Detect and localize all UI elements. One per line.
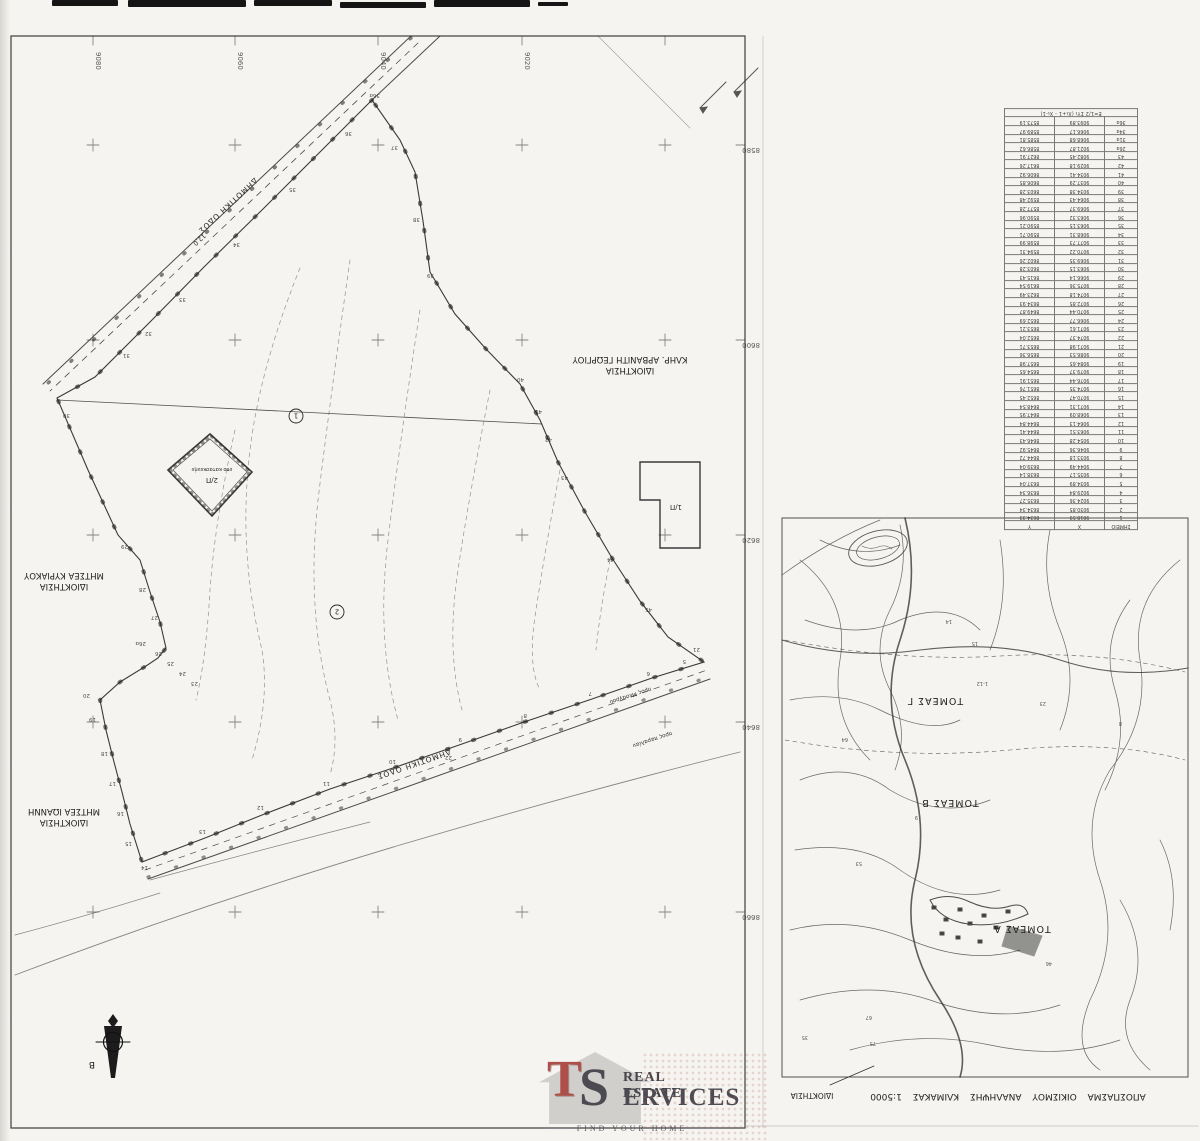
coords-row: 79044.498639.04 [1005,461,1138,470]
grid-y-label: 8580 [742,146,760,154]
point-label: 34 [233,241,240,247]
point-label: 11 [323,780,330,786]
coords-row: 169074.358651.76 [1005,384,1138,393]
point-label: 9 [915,814,918,820]
point-label: 64 [842,736,848,742]
svg-text:ΜΗΤΣΕΑ ΙΩΑΝΝΗ: ΜΗΤΣΕΑ ΙΩΑΝΝΗ [28,806,100,816]
coords-row: 109054.288646.43 [1005,435,1138,444]
coords-row: 34α9066.178589.97 [1005,126,1138,135]
point-label: 30 [63,412,70,418]
point-label: 35 [289,186,296,192]
coords-row: 99046.368645.92 [1005,444,1138,453]
coords-header-row: ΣΗΜΕΙΟ X Y [1005,521,1138,530]
owner-label-kyriakou: ΙΔΙΟΚΤΗΣΙΑ ΜΗΤΣΕΑ ΚΥΡΙΑΚΟΥ [23,570,104,591]
point-label: 23 [191,680,198,686]
coords-row: 89033.188644.72 [1005,452,1138,461]
point-label: 25 [167,660,174,666]
point-label: 53 [856,860,862,866]
coords-row: 349068.318590.71 [1005,229,1138,238]
point-label: 26α [135,640,146,646]
coords-row: 189079.378654.65 [1005,366,1138,375]
grid-y-label: 8600 [742,341,760,349]
building-2p-label: 2/Π υπο κατασκευήν [191,466,232,484]
coordinates-table: ΣΗΜΕΙΟ X Y 19018.598634.3329030.858634.3… [1004,108,1138,530]
coords-row: 39024.368635.27 [1005,495,1138,504]
halftone-artifact [642,1052,767,1140]
coords-row: 319069.358602.26 [1005,255,1138,264]
point-label: 28 [139,586,146,592]
point-label: 17 [109,780,116,786]
boundary-point-ticks [57,100,704,862]
point-label: 6 [646,670,650,676]
grid-y-label: 8620 [742,536,760,544]
point-label: 27 [151,614,158,620]
coords-row: 179076.448651.91 [1005,375,1138,384]
parcel-number-label: 1 [294,412,298,420]
grid-x-label: 9040 [379,52,387,70]
svg-text:ΙΔΙΟΚΤΗΣΙΑ: ΙΔΙΟΚΤΗΣΙΑ [40,581,89,591]
tagline-rule-left [547,1128,573,1129]
coords-row: 329070.228594.31 [1005,246,1138,255]
grid-labels: 9080 9060 9040 9020 8580 8600 8620 8640 … [94,52,760,921]
point-label: 40 [517,376,524,382]
coords-row: 229074.378652.04 [1005,332,1138,341]
point-label: 8 [523,712,527,718]
point-label: 36 [345,130,352,136]
grid-x-label: 9080 [94,52,102,70]
logo-letter-t: T [547,1050,582,1109]
north-label: Β [89,1059,95,1069]
owner-label-ioanni: ΙΔΙΟΚΤΗΣΙΑ ΜΗΤΣΕΑ ΙΩΑΝΝΗ [28,806,100,827]
point-label: 35 [802,1034,808,1040]
point-label: 41 [535,408,542,414]
coords-row: 269072.858634.93 [1005,298,1138,307]
point-label: 10 [389,758,396,764]
coords-row: 149071.318648.54 [1005,401,1138,410]
area-formula-row: Ε=1/2 ΣΥι (Χι+1 - Χι-1) [1005,109,1138,118]
parcel-number-label: 2 [335,608,339,616]
point-label: 5 [682,658,686,664]
coords-row: 139068.098647.95 [1005,409,1138,418]
svg-text:ΔΗΜΟΤΙΚΗ ΟΔΟΣ: ΔΗΜΟΤΙΚΗ ΟΔΟΣ [376,747,452,781]
parcel-division-line [57,400,542,424]
coords-row: 199084.658657.98 [1005,358,1138,367]
parcel-number-1: 1 [289,409,303,423]
building-1p-label: 1/Π [670,503,682,511]
parcel-number-2: 2 [330,605,344,619]
coords-row: 19018.598634.33 [1005,512,1138,521]
grid-x-label: 9060 [236,52,244,70]
col-header-y: Y [1005,521,1055,530]
coords-row: 49029.848636.34 [1005,487,1138,496]
point-markers: 36α3635343332313029282726α26252423201918… [63,92,700,870]
svg-text:ΚΛΗΡ. ΑΡΒΑΝΙΤΗ ΓΕΩΡΓΙΟΥ: ΚΛΗΡ. ΑΡΒΑΝΙΤΗ ΓΕΩΡΓΙΟΥ [572,354,688,364]
building-label: 2/Π [206,476,218,484]
inset-ownership-label: ΙΔΙΟΚΤΗΣΙΑ [790,1091,834,1100]
svg-text:ΔΗΜΟΤΙΚΗ ΟΔΟΣ: ΔΗΜΟΤΙΚΗ ΟΔΟΣ [196,176,259,235]
point-label: 15 [972,640,978,646]
direction-note: προς παραλίαν [632,730,673,749]
coords-row: 379069.378577.28 [1005,203,1138,212]
point-label: 37 [391,144,398,150]
point-label: 21 [693,646,700,652]
point-label: 39 [427,272,434,278]
coords-row: 59034.898637.04 [1005,478,1138,487]
point-label: 20 [83,692,90,698]
point-label: 14 [946,618,952,624]
arrow-marks [598,36,758,128]
owner-label-arvaniti: ΙΔΙΟΚΤΗΣΙΑ ΚΛΗΡ. ΑΡΒΑΝΙΤΗ ΓΕΩΡΓΙΟΥ [572,354,688,375]
coords-row: 359063.158590.21 [1005,220,1138,229]
coords-row: 129064.138644.84 [1005,418,1138,427]
point-label: 7 [588,690,592,696]
coords-row: 119063.518644.41 [1005,426,1138,435]
point-label: 67 [866,1014,872,1020]
point-label: 9 [458,736,462,742]
top-road-label: ΔΗΜΟΤΙΚΗ ΟΔΟΣ 12.0 [191,176,259,247]
coords-table-rows: 19018.598634.3329030.858634.3439024.3686… [1005,117,1138,521]
top-road [43,36,440,391]
point-label: 38 [413,216,420,222]
coords-row: 399034.388603.28 [1005,186,1138,195]
point-label: 15 [125,840,132,846]
point-label: 31 [123,352,130,358]
svg-text:ΙΔΙΟΚΤΗΣΙΑ: ΙΔΙΟΚΤΗΣΙΑ [40,817,89,827]
coords-row: 209086.538656.36 [1005,349,1138,358]
coords-row: 26α9021.878586.62 [1005,143,1138,152]
coords-row: 439082.458627.91 [1005,151,1138,160]
logo-letter-s: S [579,1060,609,1114]
svg-text:ΙΔΙΟΚΤΗΣΙΑ: ΙΔΙΟΚΤΗΣΙΑ [606,365,655,375]
point-label: 14 [141,864,148,870]
direction-notes: προς Μεσαγρού προς παραλίαν [609,685,673,749]
building-label: 1/Π [670,503,682,511]
grid-y-label: 8660 [742,913,760,921]
svg-text:ΜΗΤΣΕΑ ΚΥΡΙΑΚΟΥ: ΜΗΤΣΕΑ ΚΥΡΙΑΚΟΥ [23,570,104,580]
grid-x-label: 9020 [523,52,531,70]
coords-row: 36α9093.898573.19 [1005,117,1138,126]
building-note: υπο κατασκευήν [191,466,232,473]
sector-label: ΤΟΜΕΑΣ Β [921,797,980,808]
point-label: 1-12 [977,680,988,686]
sector-label: ΤΟΜΕΑΣ Γ [907,695,964,706]
point-label: 44 [607,556,614,562]
point-label: 12 [257,804,264,810]
ownership-leader-line [830,1066,874,1085]
point-label: 13 [199,828,206,834]
coords-row: 419034.418606.92 [1005,169,1138,178]
grid-crosses [87,36,745,918]
point-label: 46 [1046,960,1052,966]
contour-lines [196,260,610,775]
point-label: 75 [870,1040,876,1046]
coords-row: 219071.988653.71 [1005,341,1138,350]
col-header-x: X [1055,521,1105,530]
point-label: 43 [561,474,568,480]
scanned-survey-page: 9080 9060 9040 9020 8580 8600 8620 8640 … [0,0,1200,1141]
coords-row: 29030.858634.34 [1005,504,1138,513]
point-label: 42 [545,436,552,442]
coords-row: 69035.178638.14 [1005,469,1138,478]
coords-row: 339077.738598.99 [1005,237,1138,246]
inset-roads [782,518,1188,1077]
sector-label: ΤΟΜΕΑΣ Α [993,923,1052,934]
parcel-boundary [57,100,704,862]
inset-sector-labels: ΤΟΜΕΑΣ Γ ΤΟΜΕΑΣ Β ΤΟΜΕΑΣ Α [907,695,1052,934]
north-arrow-icon: Β [89,1014,130,1078]
bottom-road [145,670,710,879]
coords-row: 239071.618653.21 [1005,323,1138,332]
coords-row: 249066.778652.69 [1005,315,1138,324]
col-header-point: ΣΗΜΕΙΟ [1105,521,1138,530]
coordinates-table-wrap: ΣΗΜΕΙΟ X Y 19018.598634.3329030.858634.3… [1008,108,1138,530]
building-2p [168,434,252,516]
coords-row: 309063.158603.28 [1005,263,1138,272]
inset-caption: ΑΠΟΣΠΑΣΜΑ ΟΙΚΙΣΜΟΥ ΑΝΑΛΗΨΗΣ ΚΛΙΜΑΚΑΣ 1:5… [870,1091,1146,1101]
point-label: 26 [155,650,162,656]
point-label: 29 [121,543,128,549]
coords-row: 31α9068.688585.81 [1005,134,1138,143]
point-label: 19 [89,716,96,722]
coords-row: 389064.438592.48 [1005,194,1138,203]
coords-row: 159070.478652.45 [1005,392,1138,401]
inset-map: ΤΟΜΕΑΣ Γ ΤΟΜΕΑΣ Β ΤΟΜΕΑΣ Α 645314159231-… [782,518,1188,1101]
coords-row: 429029.188617.26 [1005,160,1138,169]
coords-row: 279074.188623.49 [1005,289,1138,298]
point-label: 36α [369,92,380,98]
coords-row: 369063.328590.96 [1005,212,1138,221]
area-formula: Ε=1/2 ΣΥι (Χι+1 - Χι-1) [1005,109,1138,118]
point-label: 8 [1119,720,1122,726]
point-label: 24 [179,670,186,676]
point-label: 16 [117,810,124,816]
coords-row: 409037.298606.85 [1005,177,1138,186]
point-label: 32 [145,330,152,336]
bottom-road-label: ΔΗΜΟΤΙΚΗ ΟΔΟΣ [376,747,452,781]
coords-row: 299066.148615.43 [1005,272,1138,281]
coords-row: 259070.448649.87 [1005,306,1138,315]
inset-markers: 645314159231-12846677535 [802,618,1122,1046]
point-label: 45 [645,606,652,612]
grid-y-label: 8640 [742,723,760,731]
point-label: 23 [1040,700,1046,706]
inset-linework [782,520,1180,1070]
point-label: 18 [101,750,108,756]
coords-row: 289075.368619.54 [1005,280,1138,289]
point-label: 22 [445,754,452,760]
point-label: 33 [179,296,186,302]
parcel-outline [57,100,704,862]
stream-lines [15,752,740,975]
inset-border [782,518,1188,1077]
